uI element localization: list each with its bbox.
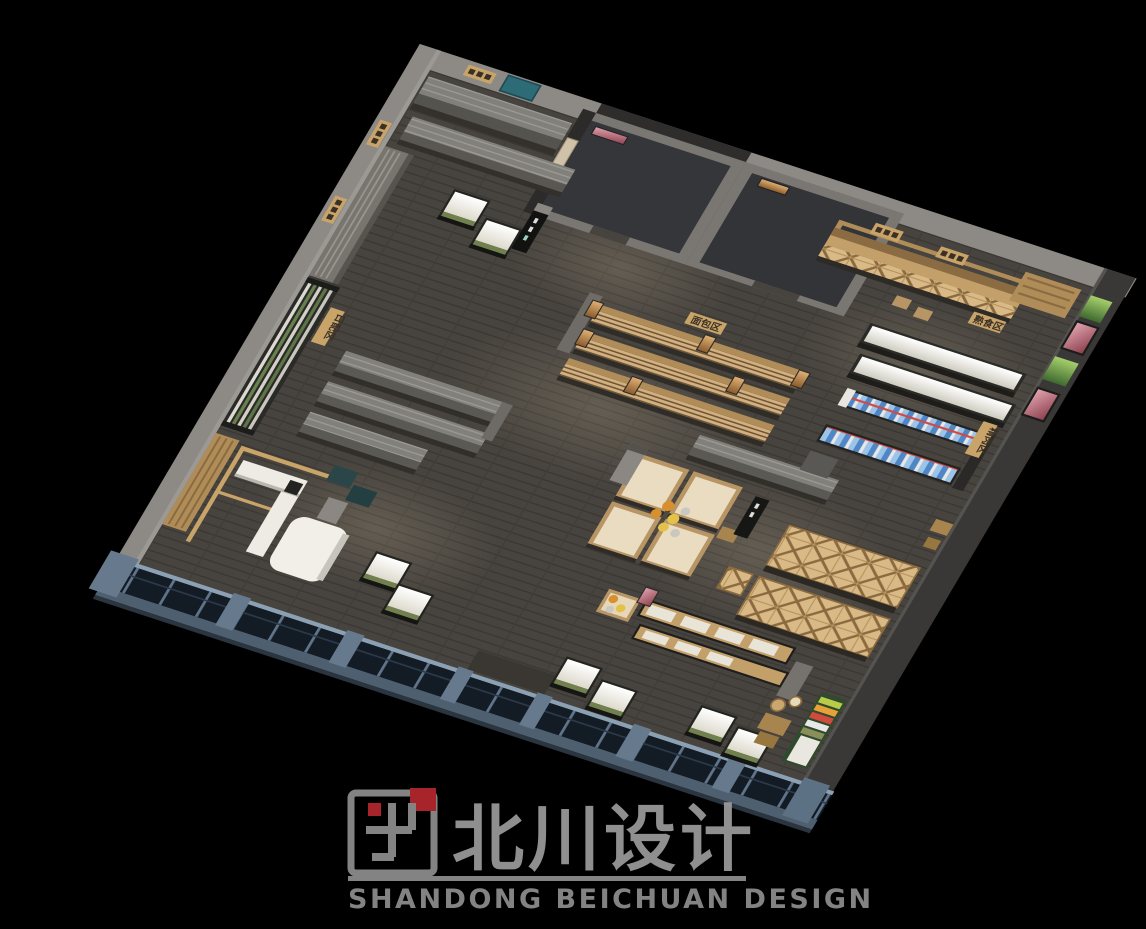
supermarket-render: 日配区 bbox=[0, 0, 1146, 929]
logo-red-square-small bbox=[368, 803, 381, 816]
render-canvas: 日配区 bbox=[0, 0, 1146, 929]
watermark-subtitle: SHANDONG BEICHUAN DESIGN bbox=[348, 884, 874, 915]
watermark-title: 北川设计 bbox=[452, 797, 756, 881]
watermark-rule bbox=[348, 876, 746, 881]
